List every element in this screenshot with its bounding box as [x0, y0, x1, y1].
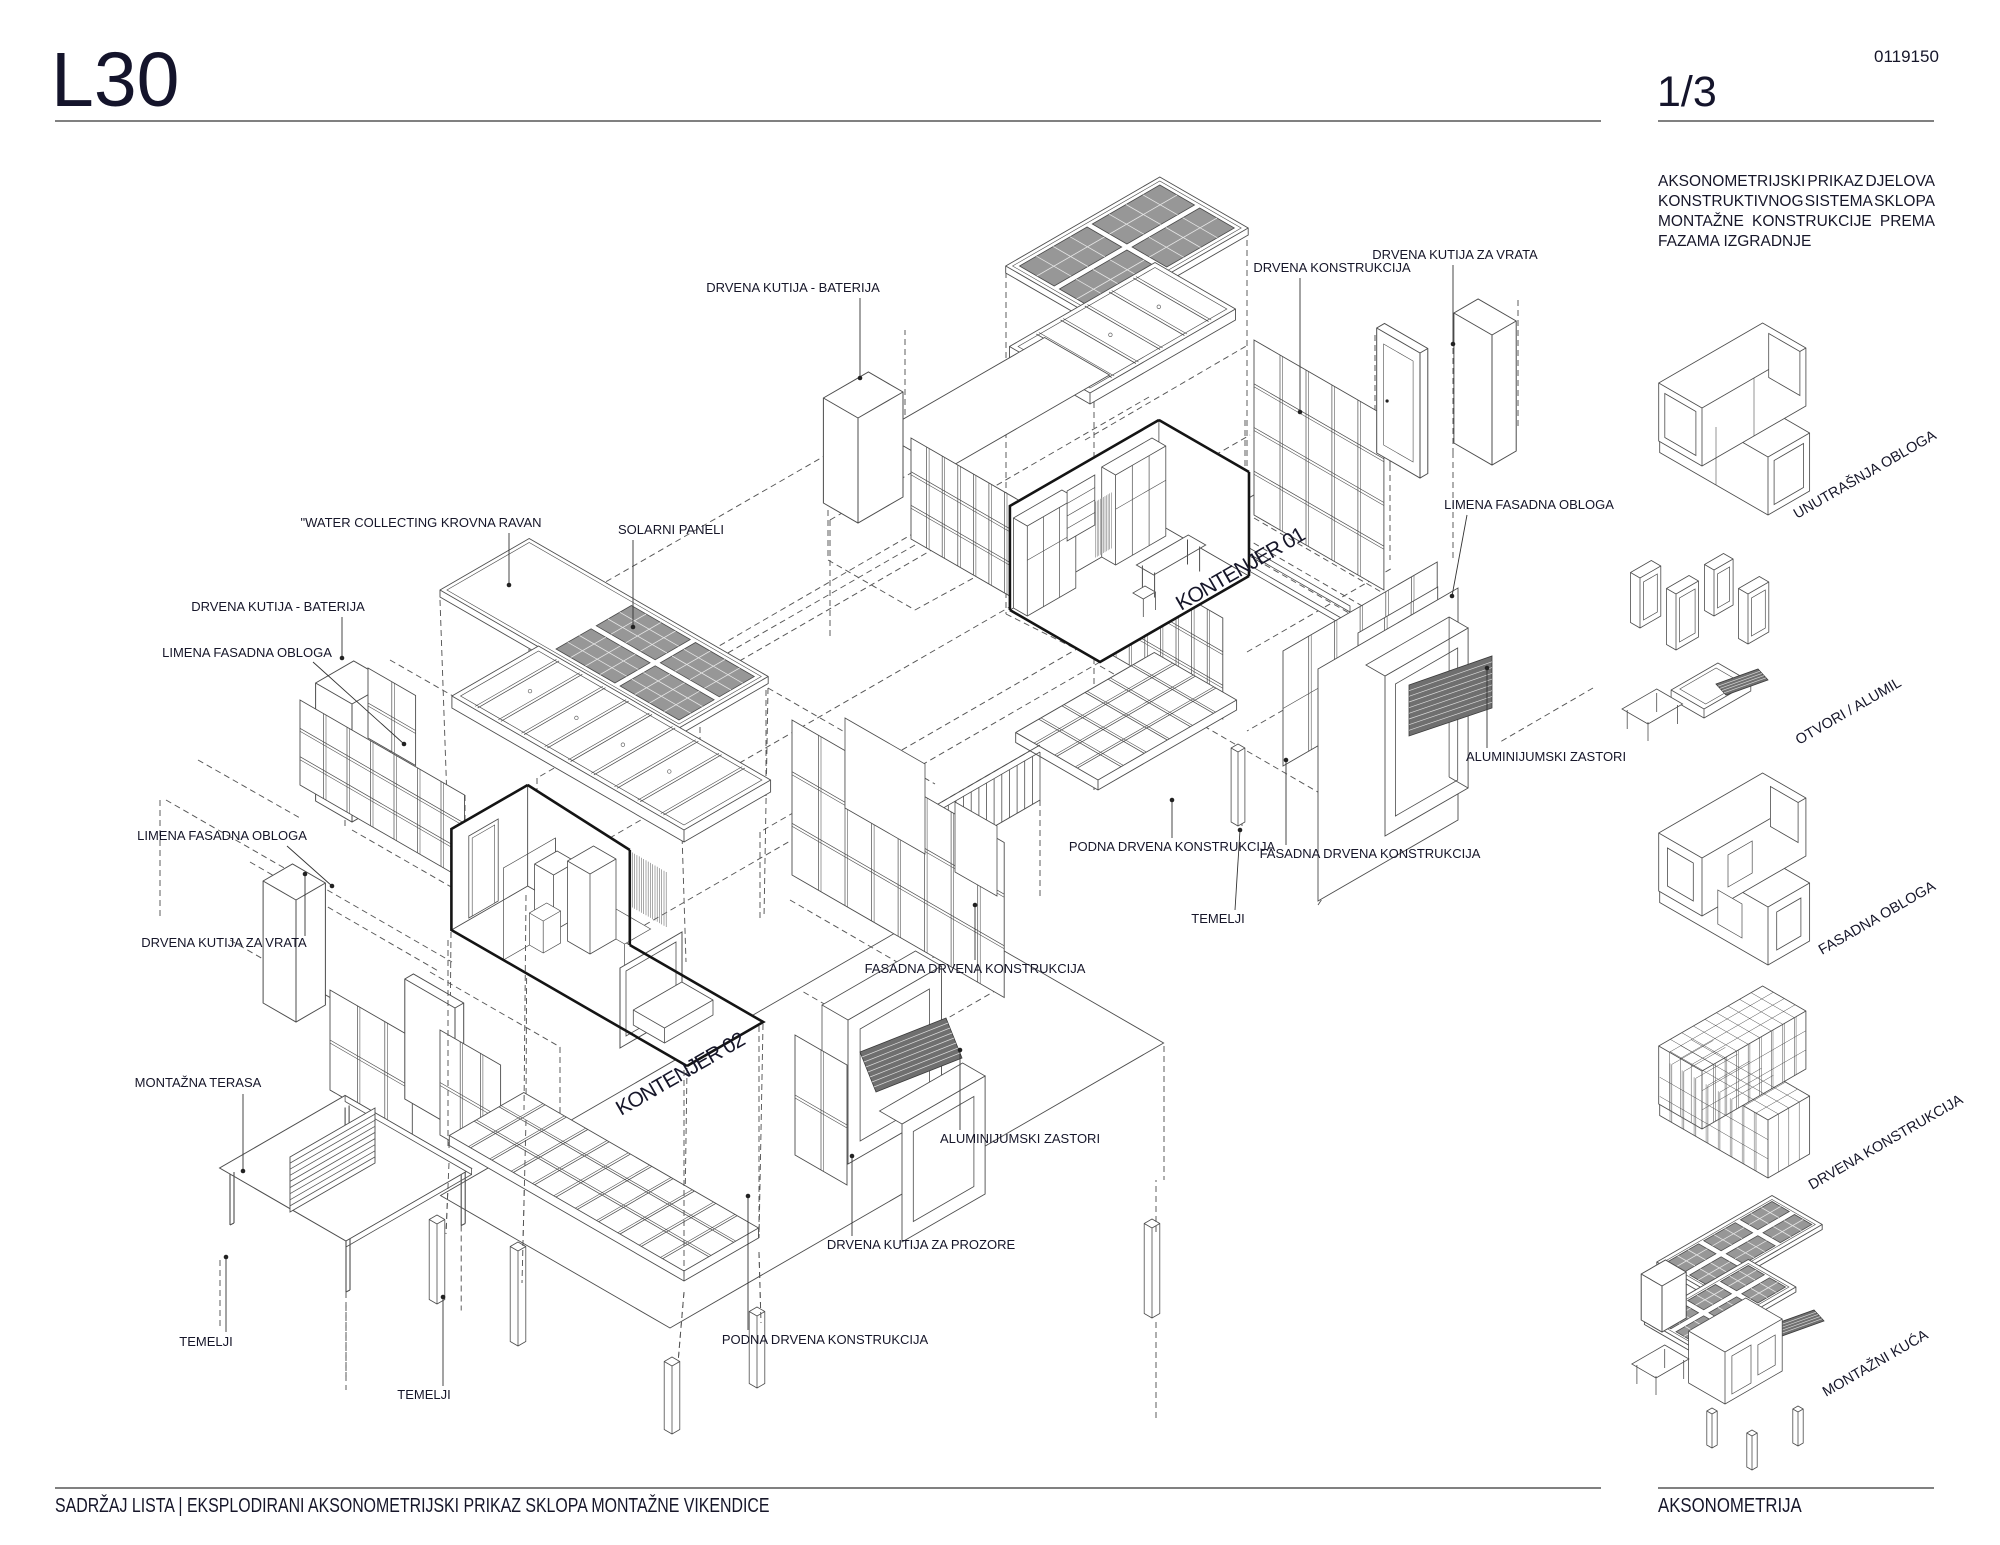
svg-text:TEMELJI: TEMELJI	[397, 1387, 450, 1402]
svg-text:LIMENA FASADNA OBLOGA: LIMENA FASADNA OBLOGA	[1444, 497, 1614, 512]
svg-text:FASADNA DRVENA KONSTRUKCIJA: FASADNA DRVENA KONSTRUKCIJA	[865, 961, 1086, 976]
svg-text:DRVENA KUTIJA ZA VRATA: DRVENA KUTIJA ZA VRATA	[1372, 247, 1538, 262]
svg-text:UNUTRAŠNJA OBLOGA: UNUTRAŠNJA OBLOGA	[1791, 427, 1940, 523]
svg-text:LIMENA FASADNA OBLOGA: LIMENA FASADNA OBLOGA	[137, 828, 307, 843]
svg-text:"WATER COLLECTING KROVNA RAVAN: "WATER COLLECTING KROVNA RAVAN	[300, 515, 541, 530]
svg-text:DRVENA KUTIJA ZA PROZORE: DRVENA KUTIJA ZA PROZORE	[827, 1237, 1016, 1252]
svg-text:DRVENA KUTIJA ZA VRATA: DRVENA KUTIJA ZA VRATA	[141, 935, 307, 950]
svg-text:ALUMINIJUMSKI ZASTORI: ALUMINIJUMSKI ZASTORI	[940, 1131, 1100, 1146]
svg-text:OTVORI / ALUMIL: OTVORI / ALUMIL	[1793, 675, 1904, 748]
svg-text:FASADNA DRVENA KONSTRUKCIJA: FASADNA DRVENA KONSTRUKCIJA	[1260, 846, 1481, 861]
svg-text:PODNA DRVENA KONSTRUKCIJA: PODNA DRVENA KONSTRUKCIJA	[1069, 839, 1276, 854]
svg-text:DRVENA KUTIJA - BATERIJA: DRVENA KUTIJA - BATERIJA	[191, 599, 365, 614]
svg-text:TEMELJI: TEMELJI	[1191, 911, 1244, 926]
svg-text:DRVENA KONSTRUKCIJA: DRVENA KONSTRUKCIJA	[1253, 260, 1411, 275]
svg-text:ALUMINIJUMSKI ZASTORI: ALUMINIJUMSKI ZASTORI	[1466, 749, 1626, 764]
svg-text:LIMENA FASADNA OBLOGA: LIMENA FASADNA OBLOGA	[162, 645, 332, 660]
svg-text:PODNA DRVENA KONSTRUKCIJA: PODNA DRVENA KONSTRUKCIJA	[722, 1332, 929, 1347]
svg-text:SOLARNI PANELI: SOLARNI PANELI	[618, 522, 724, 537]
svg-text:FASADNA OBLOGA: FASADNA OBLOGA	[1816, 878, 1939, 958]
svg-text:DRVENA KUTIJA - BATERIJA: DRVENA KUTIJA - BATERIJA	[706, 280, 880, 295]
svg-text:MONTAŽNA TERASA: MONTAŽNA TERASA	[135, 1075, 262, 1090]
svg-text:TEMELJI: TEMELJI	[179, 1334, 232, 1349]
svg-text:MONTAŽNI KUĆA: MONTAŽNI KUĆA	[1820, 1326, 1932, 1400]
svg-text:DRVENA KONSTRUKCIJA: DRVENA KONSTRUKCIJA	[1806, 1092, 1966, 1194]
